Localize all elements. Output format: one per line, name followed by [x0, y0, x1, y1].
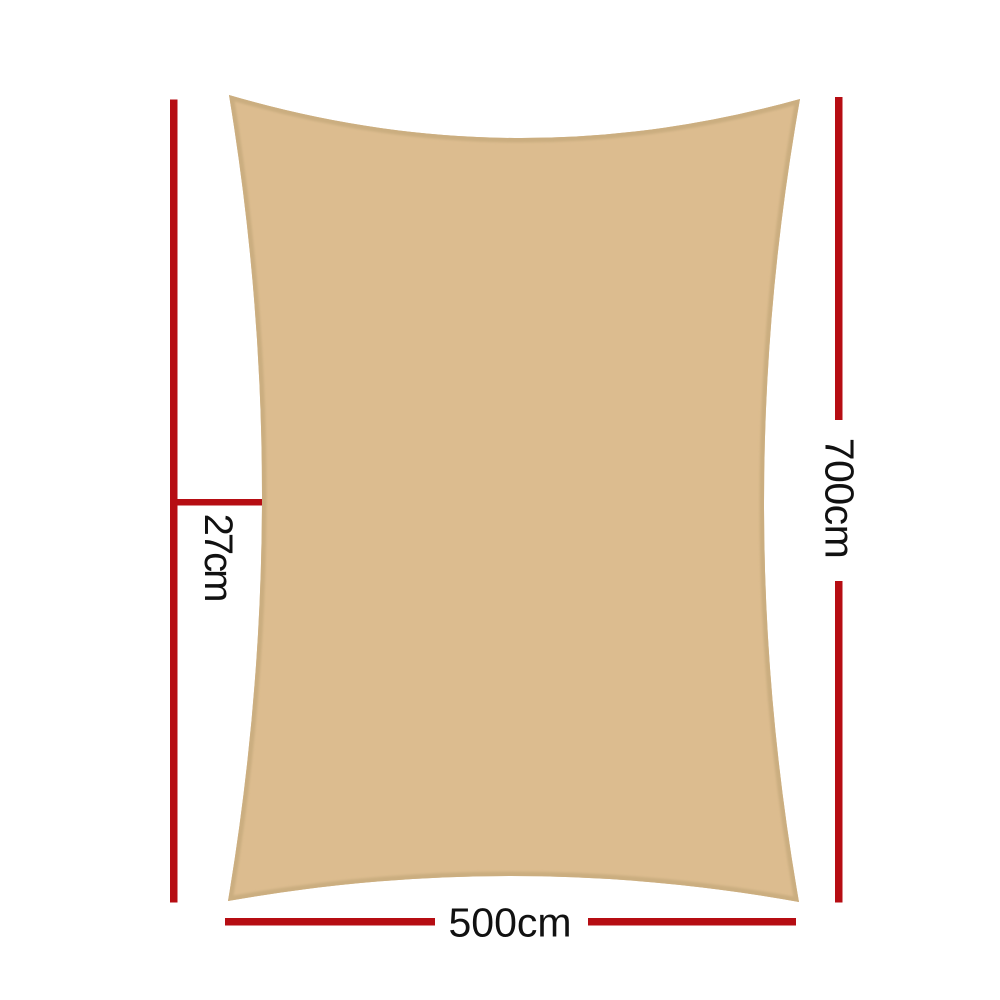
- svg-text:500cm: 500cm: [448, 900, 571, 946]
- svg-text:700cm: 700cm: [817, 438, 863, 559]
- svg-text:27cm: 27cm: [196, 514, 240, 600]
